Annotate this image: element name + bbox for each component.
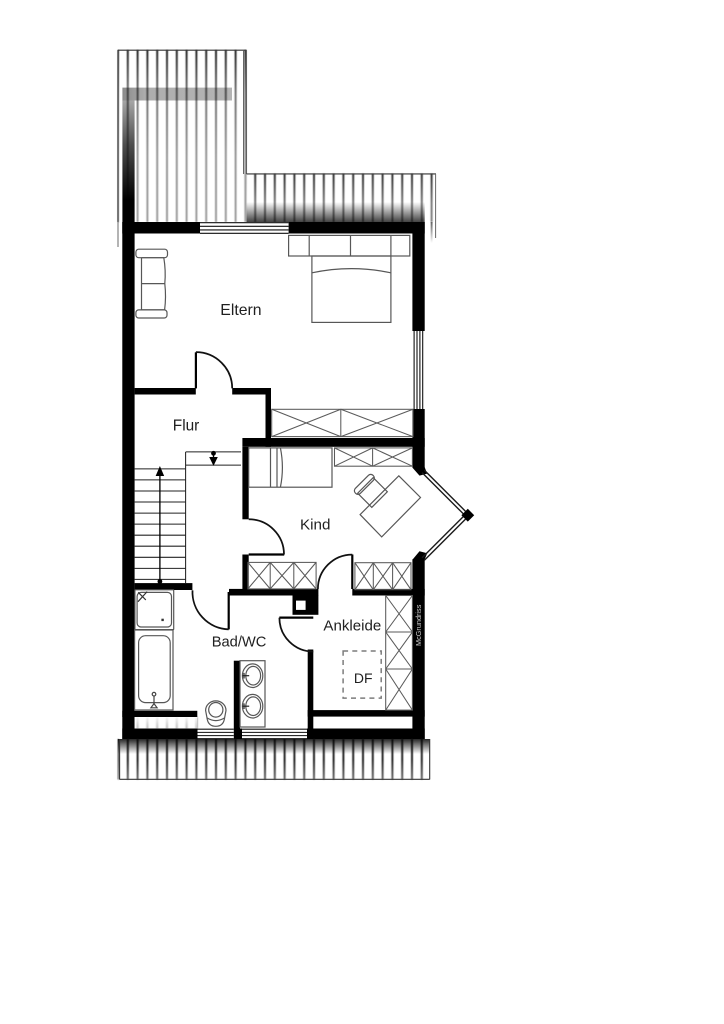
svg-text:Eltern: Eltern [220, 302, 261, 319]
svg-text:DF: DF [354, 670, 373, 686]
svg-text:Kind: Kind [300, 517, 330, 534]
svg-text:Ankleide: Ankleide [323, 617, 381, 634]
svg-text:Bad/WC: Bad/WC [212, 634, 267, 650]
svg-text:Flur: Flur [173, 418, 200, 435]
svg-text:McGrundriss: McGrundriss [414, 604, 423, 646]
